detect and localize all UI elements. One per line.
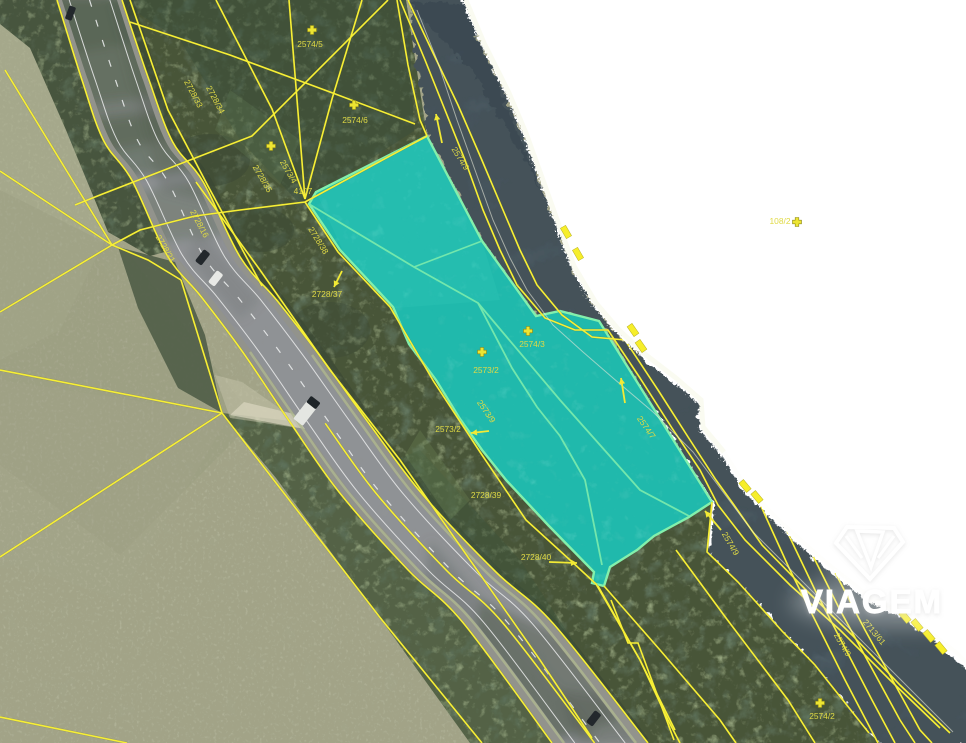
svg-text:2728/39: 2728/39 bbox=[471, 490, 502, 500]
svg-text:2573/2: 2573/2 bbox=[473, 365, 499, 375]
svg-text:VIAGEM: VIAGEM bbox=[801, 583, 943, 620]
svg-text:2574/6: 2574/6 bbox=[342, 115, 368, 125]
svg-text:2728/37: 2728/37 bbox=[312, 289, 343, 299]
svg-text:4107: 4107 bbox=[294, 186, 313, 196]
svg-text:2728/40: 2728/40 bbox=[521, 552, 552, 562]
svg-text:2574/3: 2574/3 bbox=[519, 339, 545, 349]
svg-text:2574/5: 2574/5 bbox=[297, 39, 323, 49]
svg-text:108/2: 108/2 bbox=[770, 216, 791, 226]
svg-text:2574/2: 2574/2 bbox=[809, 711, 835, 721]
svg-text:2573/2: 2573/2 bbox=[435, 424, 461, 434]
